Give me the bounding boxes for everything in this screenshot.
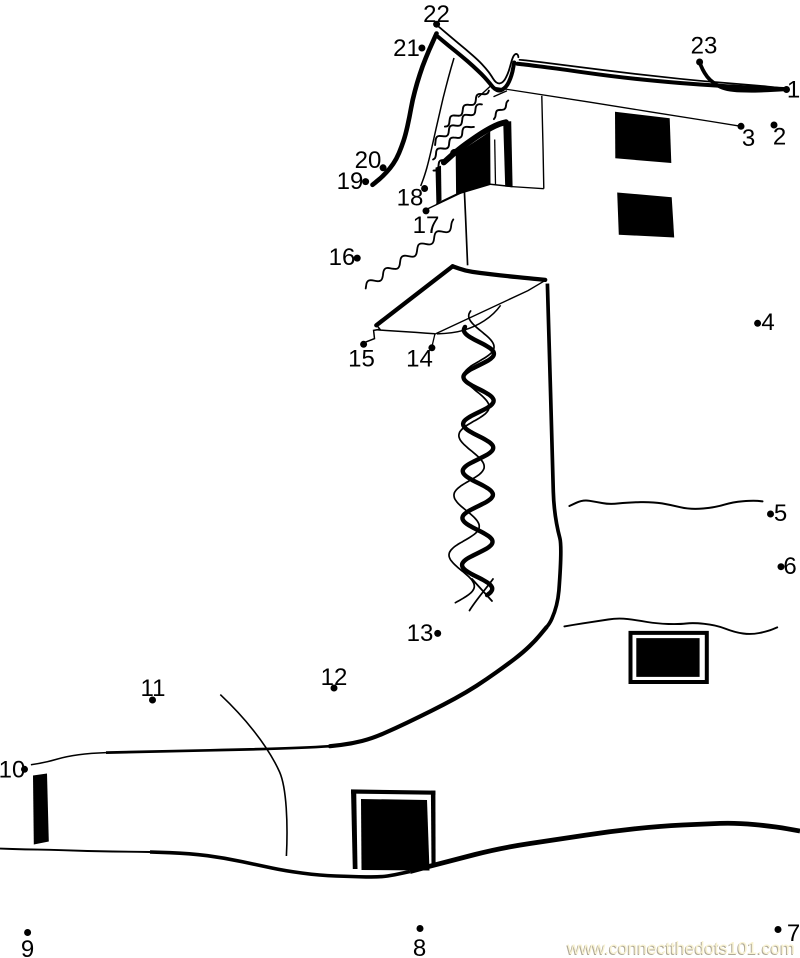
svg-text:9: 9 xyxy=(21,936,34,958)
svg-text:10: 10 xyxy=(0,757,25,784)
svg-text:22: 22 xyxy=(423,1,450,28)
svg-text:20: 20 xyxy=(355,147,382,174)
svg-text:14: 14 xyxy=(406,346,433,373)
svg-text:17: 17 xyxy=(413,212,440,239)
svg-text:3: 3 xyxy=(742,125,755,152)
svg-text:www.connectthedots101.com: www.connectthedots101.com xyxy=(566,938,795,958)
svg-text:16: 16 xyxy=(329,244,356,271)
svg-text:1: 1 xyxy=(787,77,800,104)
svg-text:15: 15 xyxy=(348,346,375,373)
svg-text:12: 12 xyxy=(321,664,348,691)
svg-text:11: 11 xyxy=(141,675,166,702)
svg-text:6: 6 xyxy=(783,553,796,580)
svg-text:2: 2 xyxy=(773,124,786,151)
svg-text:23: 23 xyxy=(691,33,718,60)
svg-text:13: 13 xyxy=(407,620,434,647)
svg-text:5: 5 xyxy=(774,500,787,527)
svg-text:4: 4 xyxy=(761,309,774,336)
svg-text:21: 21 xyxy=(393,35,420,62)
svg-text:8: 8 xyxy=(413,935,426,958)
svg-text:18: 18 xyxy=(397,185,424,212)
